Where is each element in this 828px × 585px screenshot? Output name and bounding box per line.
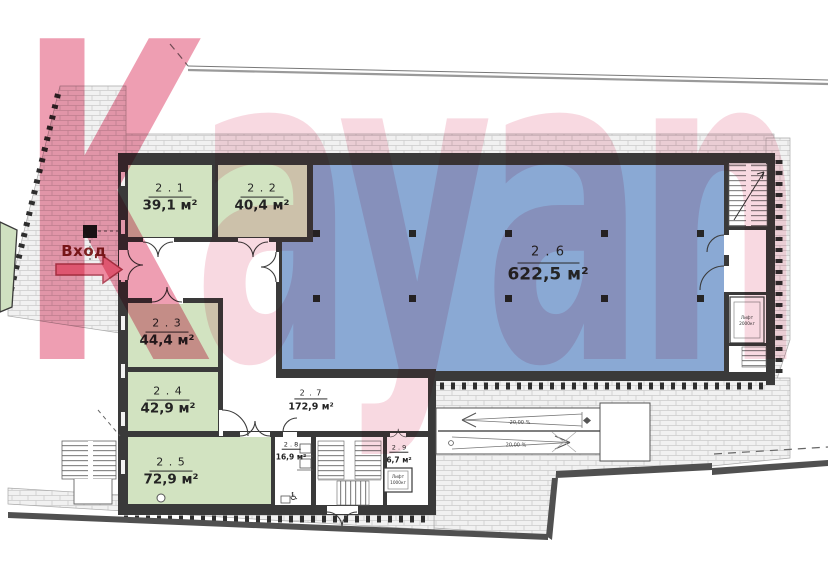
- room-label-2-1: 2 . 1 39,1 м²: [143, 177, 198, 216]
- room-label-2-9: 2 . 9 6,7 м²: [386, 435, 411, 466]
- room-area: 16,9 м²: [276, 453, 307, 463]
- wall-top: [118, 153, 774, 163]
- floor-plan-page: Лифт 1000кг ♿ Лифт 2000кг: [0, 0, 828, 585]
- paving-left-area: [8, 86, 126, 334]
- ramp-slope-label-1: 20,00 %: [510, 420, 531, 426]
- room-area: 622,5 м²: [507, 263, 588, 285]
- room-number: 2 . 4: [146, 385, 190, 401]
- room-number: 2 . 1: [148, 182, 192, 198]
- room-area: 40,4 м²: [235, 198, 290, 216]
- room-label-2-5: 2 . 5 72,9 м²: [144, 451, 199, 490]
- room-area: 6,7 м²: [386, 456, 411, 466]
- road-edge: [170, 44, 828, 84]
- room-area: 39,1 м²: [143, 198, 198, 216]
- room-label-2-2: 2 . 2 40,4 м²: [235, 177, 290, 216]
- room-number: 2 . 2: [240, 182, 284, 198]
- room-label-2-4: 2 . 4 42,9 м²: [141, 380, 196, 419]
- room-2-6-fill: [279, 164, 726, 372]
- manhole: [157, 494, 165, 502]
- room-number: 2 . 6: [517, 245, 579, 264]
- wheelchair-icon: ♿: [289, 490, 299, 503]
- room-area: 72,9 м²: [144, 472, 199, 490]
- entrance-column: [83, 225, 97, 238]
- right-steps: [742, 347, 766, 367]
- svg-text:1000кг: 1000кг: [390, 480, 407, 486]
- room-area: 42,9 м²: [141, 401, 196, 419]
- room-label-2-7: 2 . 7 172,9 м²: [288, 380, 333, 413]
- room-label-2-6: 2 . 6 622,5 м²: [507, 241, 588, 286]
- ramp: 20,00 % 20,00 %: [436, 403, 650, 461]
- room-number: 2 . 3: [145, 317, 189, 333]
- svg-text:Лифт: Лифт: [392, 474, 405, 480]
- svg-text:2000кг: 2000кг: [739, 321, 756, 327]
- room-number: 2 . 8: [282, 441, 300, 450]
- wall-bottom-right: [430, 372, 774, 381]
- lift-center: Лифт 1000кг: [384, 468, 412, 492]
- room-number: 2 . 7: [295, 388, 328, 399]
- outdoor-stair: [62, 410, 120, 504]
- room-area: 172,9 м²: [288, 401, 333, 413]
- wall-east-lower: [428, 372, 436, 515]
- right-staircase: [729, 164, 767, 226]
- room-area: 44,4 м²: [140, 333, 195, 351]
- entrance-label: Вход: [50, 242, 118, 260]
- room-label-2-3: 2 . 3 44,4 м²: [140, 312, 195, 351]
- ramp-slope-label-2: 20,00 %: [506, 443, 527, 449]
- lift-right: Лифт 2000кг: [730, 297, 764, 343]
- room-label-2-8: 2 . 8 16,9 м²: [276, 432, 307, 463]
- floor-plan-drawing: Лифт 1000кг ♿ Лифт 2000кг: [0, 0, 828, 585]
- wall-right: [766, 153, 775, 385]
- svg-text:Лифт: Лифт: [741, 315, 754, 321]
- room-number: 2 . 5: [149, 456, 193, 472]
- wall-bottom-left: [118, 505, 436, 515]
- room-number: 2 . 9: [390, 444, 408, 453]
